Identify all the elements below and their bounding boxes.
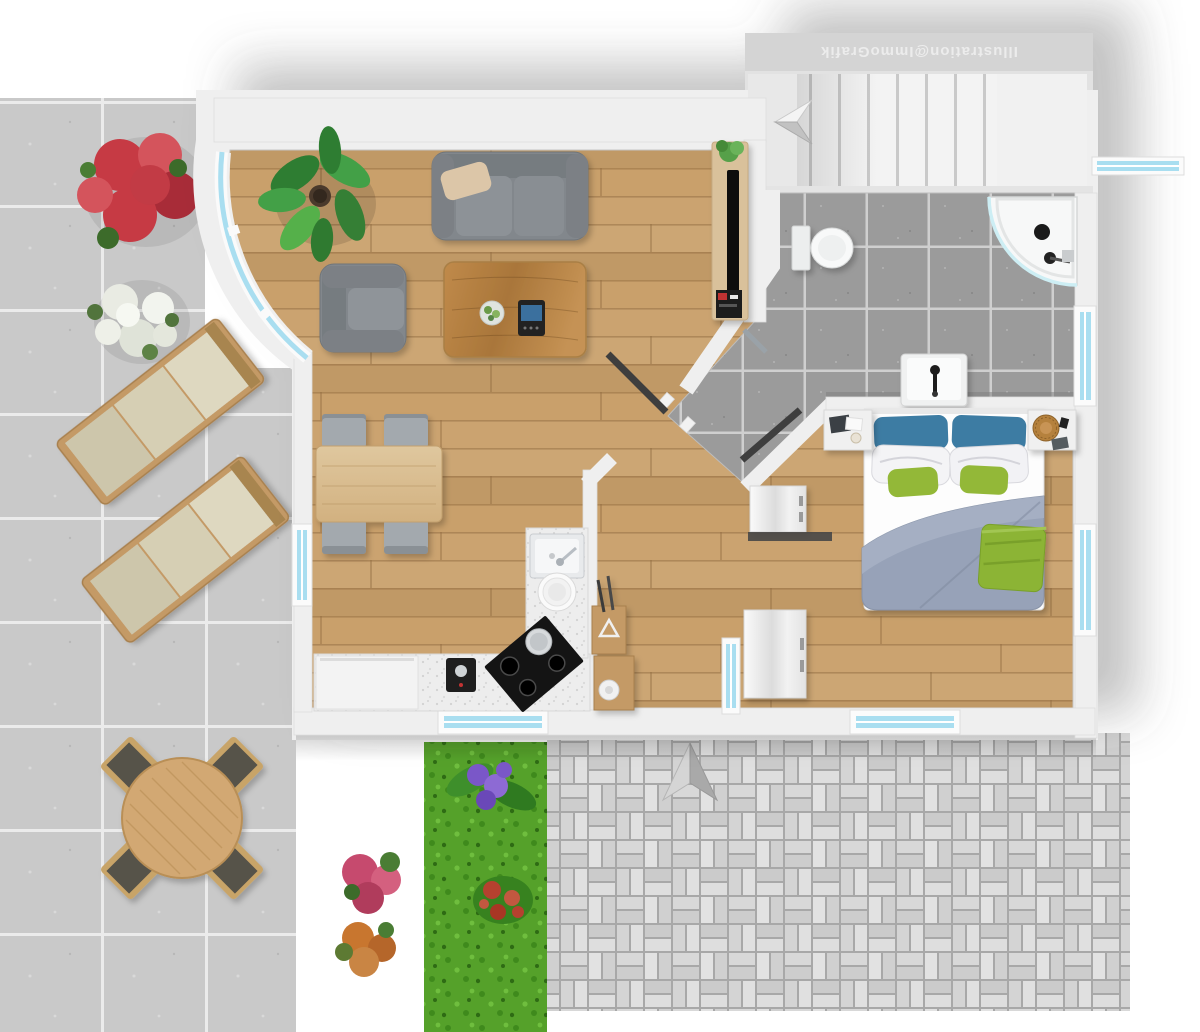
paver-patio [547,733,1130,1011]
floor-plan-scene: Illustration@ImmoGrafik [0,0,1200,1032]
nightstand-left [824,410,872,450]
kitchen-appliance [316,656,418,709]
dining-table [316,446,442,522]
outdoor-dining-set [99,735,264,900]
dining-chair [322,414,366,448]
dining-chair [322,520,366,554]
wall-right [1075,193,1097,738]
sofa [432,152,588,240]
coffee-table [444,262,586,357]
watermark-text: Illustration@ImmoGrafik [820,43,1018,60]
stair-right-landing [997,74,1087,192]
outdoor-round-table [122,758,242,878]
shower-drain [1034,224,1050,240]
double-bed [862,408,1046,610]
kitchen-sink [530,534,584,578]
bathroom-right-window [1074,306,1096,406]
hall-dark-shelf [748,532,832,541]
hall-wood-cabinet [594,656,634,710]
tv-screen [727,170,739,292]
washbasin [901,354,967,406]
bedroom-right-window [1074,524,1096,636]
hall-wardrobe [744,610,806,698]
coffee-machine [446,658,476,692]
building-south-shadow [296,735,1096,761]
plate-stack [538,573,576,611]
wall-top [214,98,766,142]
pillow-green [887,466,939,497]
armchair [320,264,406,352]
kitchen-window [438,710,548,734]
wall-bottom [294,708,1095,735]
stair-top-window [1092,157,1184,175]
hall-sideboard [750,486,806,532]
table-vase [480,301,504,325]
green-blanket [978,524,1046,592]
dining-chair [384,414,428,448]
entrance-sidelight-window [722,638,740,714]
dining-left-window [292,524,312,606]
tv-sideboard [712,140,748,320]
bedroom-bottom-window [850,710,960,734]
pillow-green [959,465,1008,495]
red-garden-flowers [473,876,533,924]
dining-chair [384,520,428,554]
toilet [792,226,853,270]
nightstand-right [1028,410,1076,450]
pink-flower-bush [342,852,401,914]
orange-flower-bush [335,922,396,977]
